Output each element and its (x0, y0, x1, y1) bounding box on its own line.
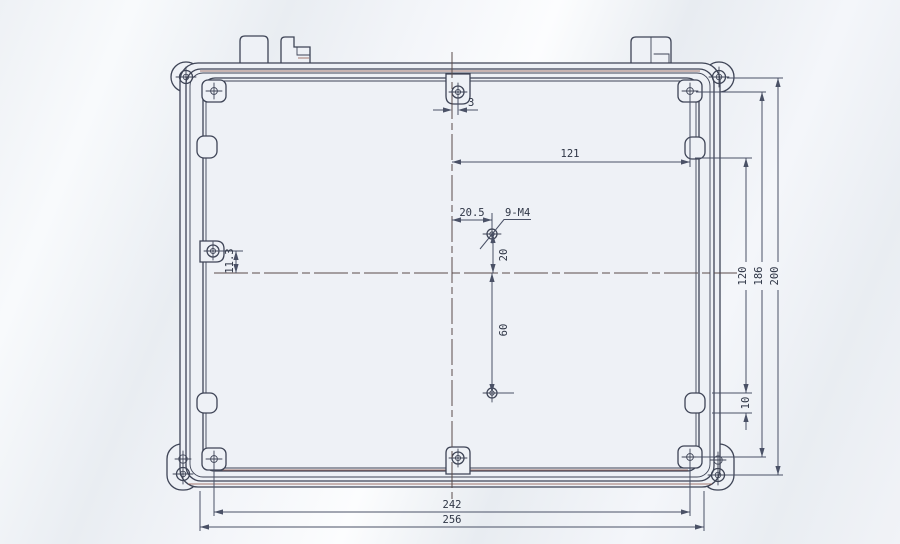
slot-left-top (197, 136, 217, 158)
dimension-label-9-M4: 9-M4 (505, 207, 530, 219)
arrow-186-bottom (759, 448, 764, 457)
dimension-label-3: 3 (468, 97, 474, 109)
dimension-label-186: 186 (753, 267, 765, 286)
arrow-200-top (775, 78, 780, 87)
arrow-200-bottom (775, 466, 780, 475)
arrow-10-bottom (743, 413, 748, 422)
tab-left-stepped (281, 37, 310, 64)
dimension-label-20: 20 (498, 249, 510, 262)
enclosure-body (180, 63, 720, 487)
dimension-label-20.5: 20.5 (459, 207, 484, 219)
arrow-186-top (759, 92, 764, 101)
slot-right-top (685, 137, 705, 159)
arrow-242-left (214, 509, 223, 514)
technical-drawing: 312120.5206011.3120186200102422569-M4 (0, 0, 900, 544)
arrow-120-top (743, 158, 748, 167)
slot-left-bottom (197, 393, 217, 413)
slot-right-bottom (685, 393, 705, 413)
arrow-256-left (200, 524, 209, 529)
arrow-120-bottom (743, 384, 748, 393)
dimension-label-256: 256 (443, 514, 462, 526)
arrow-256-right (695, 524, 704, 529)
dimension-label-11.3: 11.3 (224, 248, 236, 273)
tab-left-outer (240, 36, 268, 64)
arrow-242-right (681, 509, 690, 514)
top-tabs (240, 36, 671, 64)
body-outline-outer (180, 63, 720, 487)
dimension-label-120: 120 (737, 267, 749, 286)
dimension-label-242: 242 (443, 499, 462, 511)
dimension-label-60: 60 (498, 324, 510, 337)
dimension-label-121: 121 (561, 148, 580, 160)
dimension-label-200: 200 (769, 267, 781, 286)
dimension-label-10: 10 (740, 397, 752, 410)
